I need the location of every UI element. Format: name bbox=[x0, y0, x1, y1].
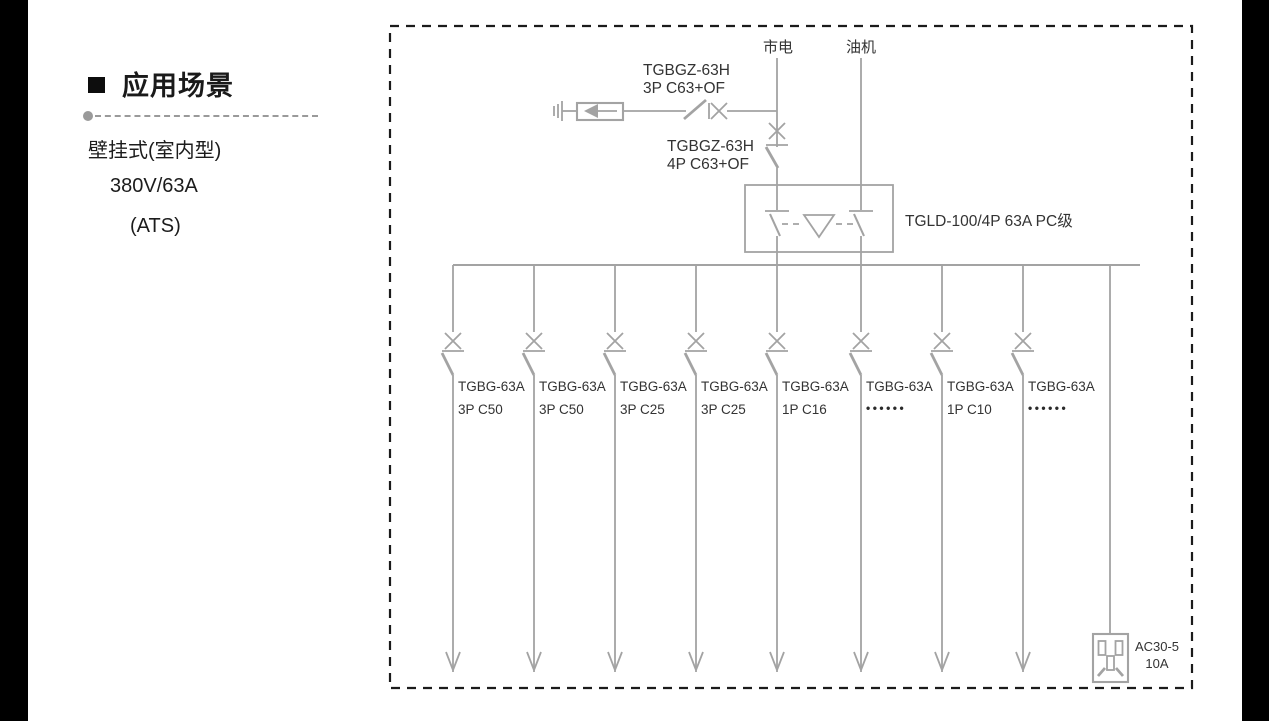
branch-feeder-6 bbox=[850, 265, 872, 672]
switch-slash-icon bbox=[523, 353, 534, 375]
branch-1-model: TGBG-63A bbox=[458, 379, 525, 394]
switch-slash-icon bbox=[766, 147, 778, 168]
breaker-x-icon bbox=[711, 103, 727, 119]
breaker-x-icon bbox=[853, 333, 869, 349]
switch-slash-icon bbox=[685, 353, 696, 375]
breaker-x-icon bbox=[688, 333, 704, 349]
branch-7-spec: 1P C10 bbox=[947, 402, 992, 417]
spd-arrow-icon bbox=[584, 104, 598, 118]
branch-4-spec: 3P C25 bbox=[701, 402, 746, 417]
switch-slash-icon bbox=[442, 353, 453, 375]
branch-feeder-2 bbox=[523, 265, 545, 672]
branch-8-spec: •••••• bbox=[1028, 401, 1068, 415]
breaker-x-icon bbox=[769, 333, 785, 349]
switch-slash-icon bbox=[684, 100, 706, 119]
switch-slash-icon bbox=[604, 353, 615, 375]
branch-6-model: TGBG-63A bbox=[866, 379, 933, 394]
breaker-x-icon bbox=[445, 333, 461, 349]
switch-slash-icon bbox=[1012, 353, 1023, 375]
breaker-x-icon bbox=[526, 333, 542, 349]
branch-feeder-7 bbox=[931, 265, 953, 672]
diagram-dashed-border bbox=[390, 26, 1192, 688]
ats-right-contact-icon bbox=[854, 214, 864, 236]
branch-2-model: TGBG-63A bbox=[539, 379, 606, 394]
main-breaker-spec-label: 4P C63+OF bbox=[667, 156, 749, 173]
branch-7-model: TGBG-63A bbox=[947, 379, 1014, 394]
mains-source-label: 市电 bbox=[763, 39, 793, 56]
branch-feeder-8 bbox=[1012, 265, 1034, 672]
branch-3-model: TGBG-63A bbox=[620, 379, 687, 394]
main-breaker-model-label: TGBGZ-63H bbox=[667, 138, 754, 155]
branch-1-spec: 3P C50 bbox=[458, 402, 503, 417]
breaker-x-icon bbox=[1015, 333, 1031, 349]
generator-source-label: 油机 bbox=[846, 39, 876, 56]
branch-feeder-4 bbox=[685, 265, 707, 672]
switch-slash-icon bbox=[931, 353, 942, 375]
ats-switch bbox=[745, 185, 893, 265]
switch-slash-icon bbox=[766, 353, 777, 375]
branch-feeders bbox=[442, 265, 1034, 672]
branch-4-model: TGBG-63A bbox=[701, 379, 768, 394]
switch-slash-icon bbox=[850, 353, 861, 375]
earth-icon bbox=[554, 101, 562, 121]
socket-branch bbox=[1093, 265, 1128, 682]
breaker-x-icon bbox=[607, 333, 623, 349]
ats-label: TGLD-100/4P 63A PC级 bbox=[905, 212, 1073, 230]
socket-model-label: AC30-5 bbox=[1135, 639, 1179, 654]
branch-8-model: TGBG-63A bbox=[1028, 379, 1095, 394]
branch-5-spec: 1P C16 bbox=[782, 402, 827, 417]
incoming-lines bbox=[777, 58, 861, 185]
breaker-x-icon bbox=[934, 333, 950, 349]
branch-feeder-5 bbox=[766, 265, 788, 672]
socket-outlet-icon bbox=[1093, 634, 1128, 682]
branch-6-spec: •••••• bbox=[866, 401, 906, 415]
branch-3-spec: 3P C25 bbox=[620, 402, 665, 417]
ats-mechanism-triangle-icon bbox=[804, 215, 834, 237]
spd-breaker-model-label: TGBGZ-63H bbox=[643, 62, 730, 79]
branch-2-spec: 3P C50 bbox=[539, 402, 584, 417]
ats-left-contact-icon bbox=[770, 214, 780, 236]
branch-feeder-3 bbox=[604, 265, 626, 672]
spd-breaker-spec-label: 3P C63+OF bbox=[643, 80, 725, 97]
single-line-diagram: 市电 油机 TGBGZ-63H 3P C63+OF bbox=[0, 0, 1269, 721]
socket-rating-label: 10A bbox=[1145, 656, 1168, 671]
spd-branch bbox=[554, 100, 777, 121]
ats-box bbox=[745, 185, 893, 252]
branch-feeder-1 bbox=[442, 265, 464, 672]
branch-5-model: TGBG-63A bbox=[782, 379, 849, 394]
